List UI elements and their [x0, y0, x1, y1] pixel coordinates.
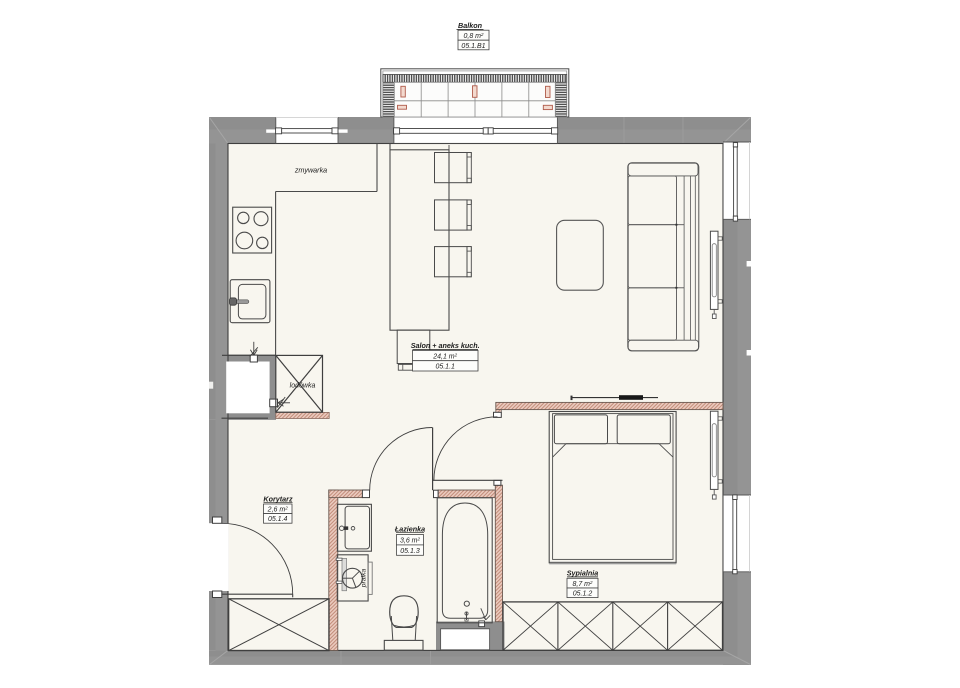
- svg-text:lodówka: lodówka: [290, 382, 316, 389]
- svg-text:8,7 m2: 8,7 m2: [572, 580, 593, 588]
- svg-text:05.1.4: 05.1.4: [268, 516, 288, 523]
- svg-text:pralka: pralka: [361, 569, 368, 589]
- svg-text:3,6 m2: 3,6 m2: [400, 537, 421, 545]
- svg-text:Balkon: Balkon: [458, 21, 483, 30]
- svg-text:Korytarz: Korytarz: [263, 494, 293, 503]
- svg-text:05.1.1: 05.1.1: [435, 364, 455, 371]
- svg-text:05.1.2: 05.1.2: [573, 590, 593, 597]
- svg-text:05.1.3: 05.1.3: [400, 548, 420, 555]
- svg-text:Sypialnia: Sypialnia: [567, 569, 599, 578]
- svg-text:Salon + aneks kuch.: Salon + aneks kuch.: [411, 341, 480, 350]
- svg-text:zmywarka: zmywarka: [294, 166, 327, 175]
- svg-text:Łazienka: Łazienka: [394, 524, 425, 533]
- svg-text:24,1 m2: 24,1 m2: [432, 352, 457, 360]
- svg-text:0,8 m2: 0,8 m2: [463, 32, 484, 40]
- svg-text:2,6 m2: 2,6 m2: [267, 505, 289, 513]
- svg-text:05.1.B1: 05.1.B1: [461, 43, 485, 50]
